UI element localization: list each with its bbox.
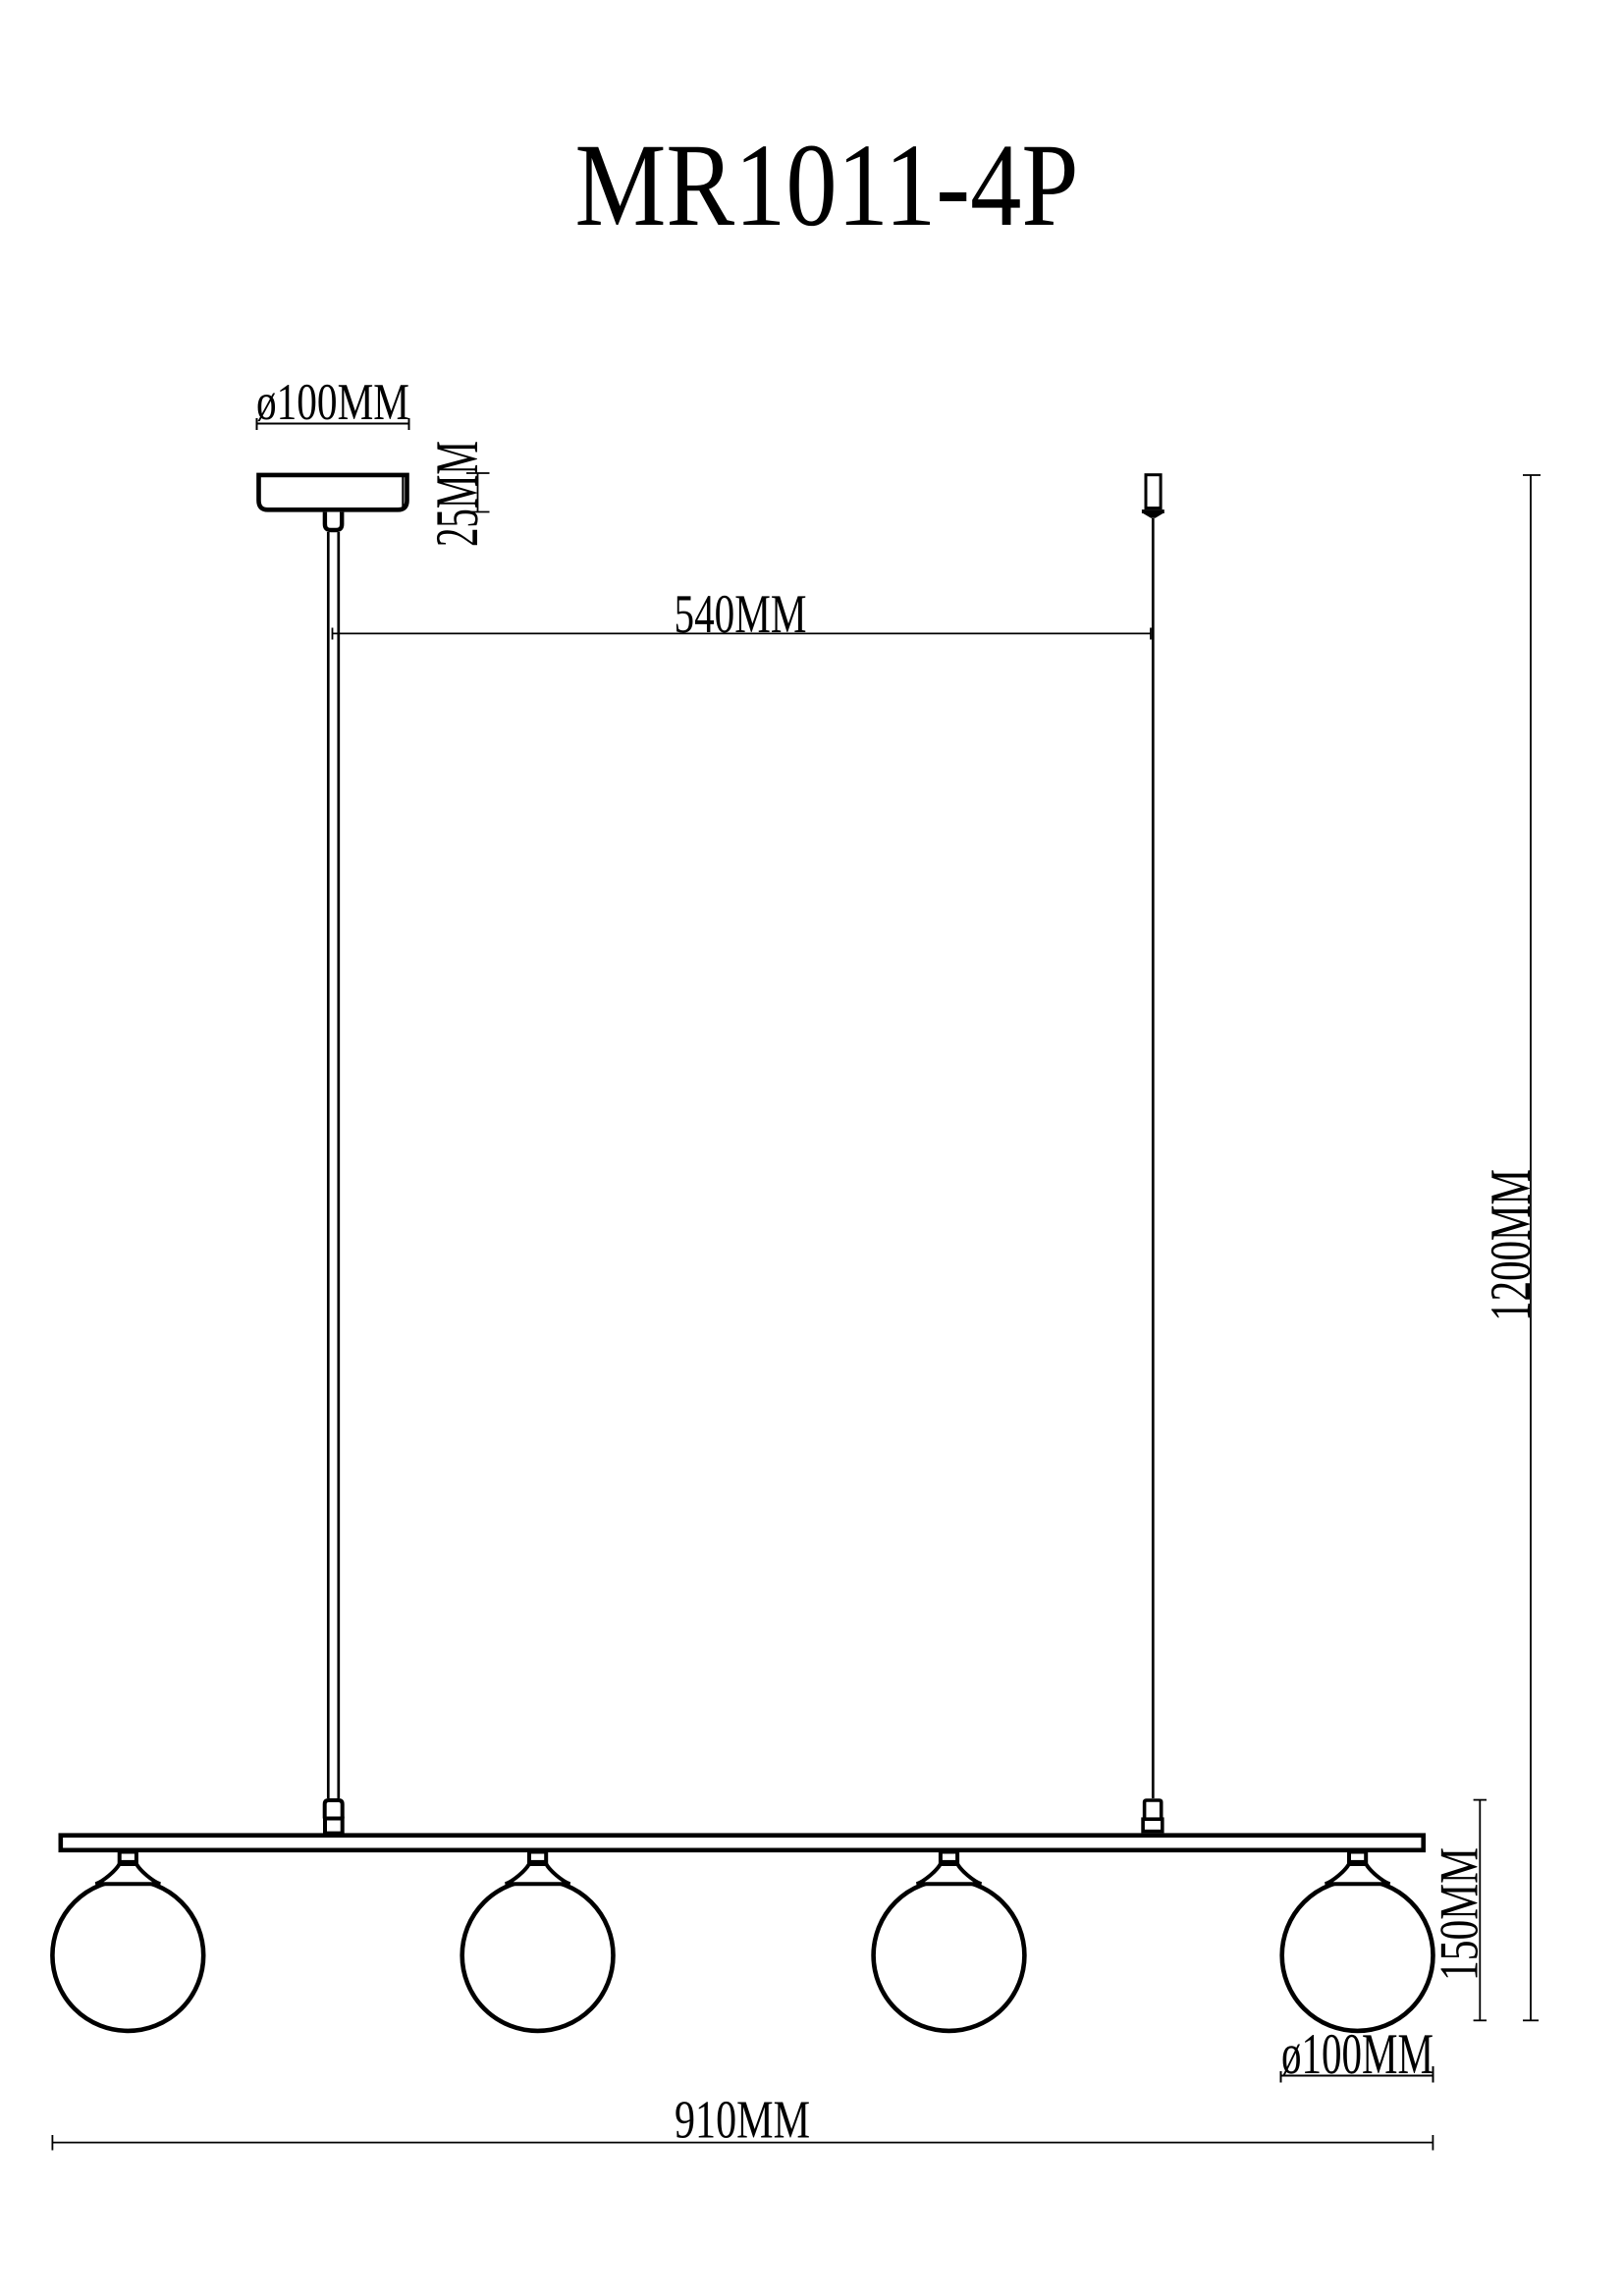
svg-text:25MM: 25MM	[424, 441, 491, 547]
svg-text:150MM: 150MM	[1430, 1847, 1490, 1981]
svg-text:1200MM: 1200MM	[1478, 1169, 1542, 1321]
svg-text:540MM: 540MM	[675, 584, 807, 645]
svg-text:MR1011-4P: MR1011-4P	[575, 120, 1079, 251]
svg-text:ø100MM: ø100MM	[256, 374, 409, 431]
svg-text:910MM: 910MM	[675, 2090, 810, 2150]
